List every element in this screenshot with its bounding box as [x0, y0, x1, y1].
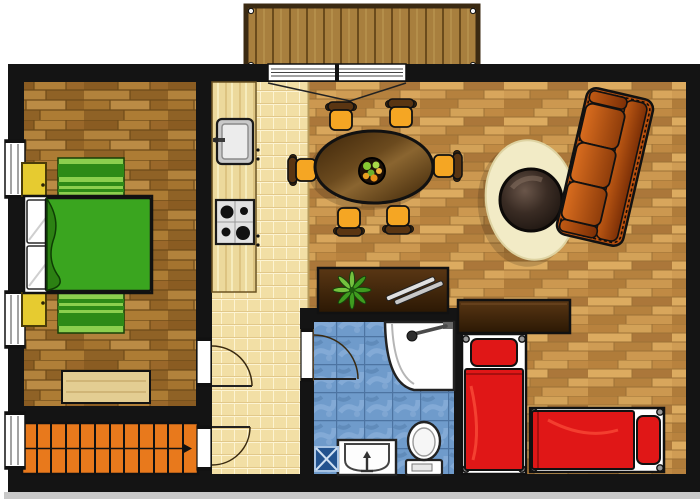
potted-plant [333, 271, 371, 309]
bed-post [519, 336, 525, 342]
dining-chair [383, 206, 414, 234]
dining-chair [326, 102, 357, 130]
fruit-bowl [359, 158, 385, 184]
bed-post [463, 336, 469, 342]
striped-rug-upper [58, 158, 124, 196]
bed-blanket-red [532, 411, 634, 469]
balcony-deck [246, 6, 478, 70]
burner-large [221, 206, 234, 219]
burner-small [240, 207, 248, 215]
bed-post [657, 465, 663, 471]
bedroom-stairs-divider-wall [8, 406, 212, 422]
wardrobe [458, 300, 570, 333]
bed-blanket [46, 198, 151, 291]
bathroom-west-wall-upper [300, 308, 314, 329]
kitchen-counter [212, 82, 256, 292]
burner-large [236, 226, 250, 240]
kitchen-stove [216, 200, 254, 244]
dining-chair [334, 208, 365, 236]
dining-chair [288, 155, 316, 186]
floor-drain [315, 447, 338, 471]
balcony-post-bolt [248, 8, 253, 13]
kitchen [212, 82, 260, 292]
round-coffee-table [500, 169, 562, 231]
nightstand-upper [22, 163, 46, 196]
balcony-post-bolt [470, 8, 475, 13]
double-bed [24, 196, 152, 293]
bed-post [657, 409, 663, 415]
floor-plan-drawing [0, 0, 700, 500]
washbasin [338, 440, 396, 475]
bedroom-bench [62, 371, 150, 403]
bed-pillow-red [471, 339, 517, 366]
nightstand-knob [41, 183, 45, 187]
staircase [22, 423, 198, 474]
burner-small [222, 228, 231, 237]
plan-drop-shadow [4, 492, 700, 499]
bathroom-west-wall-lower [300, 381, 314, 476]
single-bed-vertical [462, 334, 526, 474]
sliding-door-divider [335, 64, 339, 81]
striped-rug-lower [58, 293, 124, 333]
window-stairwell [5, 412, 25, 469]
sofa-cushion [560, 180, 608, 227]
sideboard [318, 268, 448, 313]
dining-chair [386, 99, 417, 127]
dining-chair [434, 151, 462, 182]
kitchen-sink [213, 119, 253, 164]
nightstand-lower [22, 293, 46, 326]
toilet [406, 422, 442, 475]
floor-plan-canvas [0, 0, 700, 500]
bed-pillow-red [637, 416, 660, 464]
single-bed-horizontal [530, 408, 664, 472]
nightstand-knob [41, 301, 45, 305]
bedroom-east-wall-upper [196, 82, 212, 338]
